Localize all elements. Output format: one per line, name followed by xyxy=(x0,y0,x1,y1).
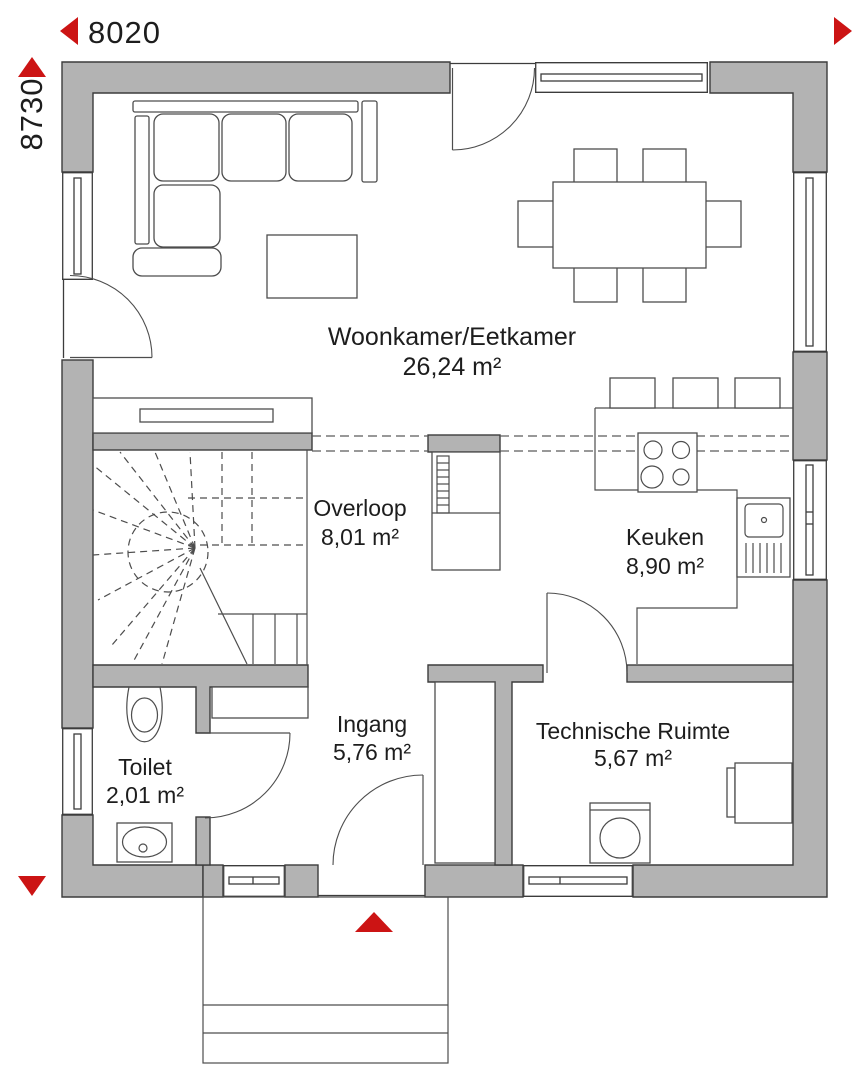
dining-chair xyxy=(643,267,686,302)
window-right-upper xyxy=(793,172,827,352)
entry-closet xyxy=(435,682,495,863)
washing-machine xyxy=(590,803,650,863)
window-left-living xyxy=(62,172,93,280)
dining-table xyxy=(553,182,706,268)
door-terrace-left xyxy=(70,276,152,358)
wall-technical-north xyxy=(627,665,793,682)
dimension-height: 8730 xyxy=(14,57,49,896)
arrow-up-icon xyxy=(18,57,46,77)
entrance-arrow-icon xyxy=(355,912,393,932)
upper-floor-edge-lines xyxy=(312,436,793,451)
hallway-closet xyxy=(212,687,308,718)
wall-bottom-2 xyxy=(285,865,318,897)
room-area-ingang: 5,76 m² xyxy=(333,739,411,765)
room-area-technische: 5,67 m² xyxy=(594,745,672,771)
dimension-width-label: 8020 xyxy=(88,15,161,50)
dining-chair xyxy=(574,267,617,302)
dimension-width: 8020 xyxy=(60,15,852,50)
dining-chair xyxy=(705,201,741,247)
dining-chair xyxy=(574,149,617,183)
tv-cabinet xyxy=(93,398,312,433)
room-label-woonkamer: Woonkamer/Eetkamer xyxy=(328,323,576,351)
wall-bottom-1 xyxy=(203,865,223,897)
window-top xyxy=(535,62,708,93)
room-area-overloop: 8,01 m² xyxy=(321,524,399,550)
window-right-lower xyxy=(793,460,827,580)
wall-stair-north xyxy=(93,433,312,450)
room-area-toilet: 2,01 m² xyxy=(106,782,184,808)
boiler xyxy=(727,763,792,823)
wall-left-mid xyxy=(62,360,93,728)
room-area-woonkamer: 26,24 m² xyxy=(403,353,502,381)
wall-kitchen-stub xyxy=(428,435,500,452)
door-front xyxy=(333,775,423,865)
door-toilet xyxy=(205,733,290,818)
wc-toilet xyxy=(127,687,162,742)
arrow-right-icon xyxy=(834,17,852,45)
door-technical xyxy=(547,593,627,673)
room-area-keuken: 8,90 m² xyxy=(626,553,704,579)
dining-chair xyxy=(643,149,686,183)
room-label-keuken: Keuken xyxy=(626,524,704,550)
staircase xyxy=(93,450,307,665)
cabinet-column xyxy=(432,452,500,570)
bar-stool xyxy=(673,378,718,408)
wall-right-mid xyxy=(793,352,827,460)
cooktop xyxy=(638,433,697,492)
dining-chair xyxy=(518,201,554,247)
washbasin xyxy=(117,823,172,862)
door-top xyxy=(453,68,535,150)
arrow-left-icon xyxy=(60,17,78,45)
dimension-height-label: 8730 xyxy=(14,78,49,151)
entrance-porch xyxy=(203,897,448,1063)
bar-stool xyxy=(735,378,780,408)
kitchen-counter xyxy=(595,378,793,664)
kitchen-sink xyxy=(737,498,790,577)
coffee-table xyxy=(267,235,357,298)
wall-toilet-stub xyxy=(196,817,210,865)
window-left-toilet xyxy=(62,728,93,815)
arrow-down-icon xyxy=(18,876,46,896)
wall-bottom-3 xyxy=(425,865,523,897)
floor-plan: Woonkamer/Eetkamer 26,24 m² Overloop 8,0… xyxy=(0,0,858,1080)
dining-set xyxy=(518,149,741,302)
window-bottom-ingang xyxy=(223,865,285,897)
room-label-ingang: Ingang xyxy=(337,711,407,737)
wall-top-right xyxy=(710,62,827,172)
room-label-overloop: Overloop xyxy=(313,495,406,521)
window-bottom-technical xyxy=(523,865,633,897)
floor-plan-canvas: Woonkamer/Eetkamer 26,24 m² Overloop 8,0… xyxy=(0,0,858,1080)
room-label-technische: Technische Ruimte xyxy=(536,718,730,744)
bar-stool xyxy=(610,378,655,408)
room-label-toilet: Toilet xyxy=(118,754,172,780)
